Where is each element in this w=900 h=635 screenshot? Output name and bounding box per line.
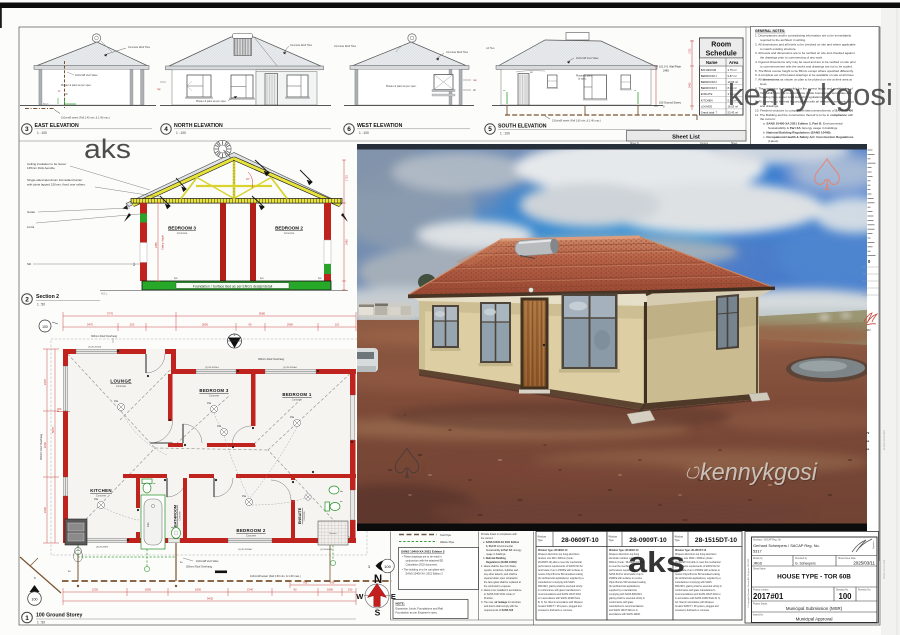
svg-text:Sustainability & Part XA: Ener: Sustainability & Part XA: Energy usage i… [768, 126, 838, 130]
svg-text:110mmØ Vent Valve: 110mmØ Vent Valve [196, 560, 219, 563]
svg-text:BEDROOM 2: BEDROOM 2 [701, 80, 718, 84]
svg-text:SANS 10400-XA 2021 Edition 2: SANS 10400-XA 2021 Edition 2 [401, 550, 445, 554]
svg-text:2465: 2465 [154, 242, 158, 248]
svg-text:2340: 2340 [247, 588, 254, 592]
svg-text:Sustainability & Part XA: Ener: Sustainability & Part XA: Energy [486, 549, 522, 552]
svg-text:bath: bath [147, 522, 150, 527]
svg-text:Soil Pipe: Soil Pipe [440, 533, 451, 537]
svg-text:NORTH ELEVATION: NORTH ELEVATION [174, 123, 223, 129]
svg-text:1 : 50: 1 : 50 [37, 303, 45, 307]
svg-text:(for architectural application: (for architectural applications), [609, 585, 641, 588]
svg-text:Concrete: Concrete [116, 385, 127, 388]
svg-text:Issued for: Issued for [753, 614, 763, 617]
svg-text:Window Type: 28-0609T-10: Window Type: 28-0609T-10 [538, 550, 568, 552]
svg-text:999:2013, glazing shall be exe: 999:2013, glazing shall be executed stri… [538, 585, 583, 588]
svg-text:1733: 1733 [345, 175, 349, 181]
svg-text:and doors shall comply with th: and doors shall comply with the [484, 605, 519, 608]
svg-text:1. Glass shall be free from f: 1. Glass shall be free from flaws, [481, 565, 517, 568]
svg-text:to commencement with the works: to commencement with the works and drawi… [760, 64, 853, 68]
svg-text:Schedule: Schedule [706, 51, 737, 58]
svg-text:Concrete Roof Tiles: Concrete Roof Tiles [128, 46, 151, 49]
svg-text:5317: 5317 [753, 549, 762, 554]
svg-text:28-0909T-10: 28-0909T-10 [629, 537, 667, 544]
svg-text:Section 2: Section 2 [36, 294, 59, 300]
svg-text:XA, fitted in accordance with: XA, fitted in accordance with Wispeco [675, 601, 715, 604]
svg-text:Regulations (SANS 10400):: Regulations (SANS 10400): [486, 561, 517, 564]
svg-text:BATHROOM: BATHROOM [174, 505, 178, 527]
svg-text:110mmØ sewer (Fall 1:60 min.: 110mmØ sewer (Fall 1:60 min. & 1:40 max.… [552, 120, 601, 123]
svg-text:N.G.L.: N.G.L. [101, 294, 108, 296]
svg-text:2: 2 [25, 296, 29, 303]
svg-text:Concrete: Concrete [246, 534, 257, 537]
svg-text:recommendations and SANS 10137: recommendations and SANS 10137:2011 [538, 593, 582, 596]
svg-text:usage in buildings: usage in buildings [486, 553, 506, 556]
svg-text:receive 15μm Bronze 543 anodis: receive 15μm Bronze 543 anodised coating [538, 573, 584, 576]
svg-text:3. All levels and dimensions: 3. All levels and dimensions are to be v… [755, 51, 855, 55]
svg-text:15a: 15a [114, 400, 119, 403]
svg-text:5080: 5080 [259, 312, 266, 316]
svg-text:2465: 2465 [663, 69, 669, 73]
svg-text:1: 1 [25, 615, 29, 622]
svg-text:S: S [375, 608, 381, 618]
svg-text:BEDROOM 2: BEDROOM 2 [275, 226, 303, 231]
svg-text:Crealco SWIFT™ 28 system, plug: Crealco SWIFT™ 28 system, plugged and [675, 605, 719, 608]
svg-text:B, N, XA, fitted in accordance: B, N, XA, fitted in accordance with Wisp… [538, 601, 583, 604]
svg-text:Shower: Shower [329, 532, 337, 535]
svg-text:2: 2 [234, 333, 236, 337]
svg-text:Sheet Name: Sheet Name [753, 568, 766, 571]
svg-text:BEDROOM 3: BEDROOM 3 [701, 86, 718, 90]
svg-text:11. The Building and the const: 11. The Building and the construction th… [755, 113, 853, 117]
svg-text:110: 110 [335, 323, 340, 327]
svg-text:2465: 2465 [345, 239, 349, 245]
svg-text:et in accordance with SANS 104: et in accordance with SANS 10400 Parts [538, 597, 581, 600]
svg-text:5. The Brick course height t: 5. The Brick course height to be 85mm ex… [755, 69, 854, 73]
svg-text:screwed to brickwork or concre: screwed to brickwork or concrete. [675, 609, 710, 612]
svg-text:with joints lapped 150mm, fixe: with joints lapped 150mm, fixed over raf… [27, 183, 86, 187]
svg-text:100 Ground Storey: 100 Ground Storey [36, 613, 83, 619]
svg-text:aks: aks [628, 547, 685, 579]
svg-text:1 : 100: 1 : 100 [176, 131, 186, 135]
svg-text:the current:: the current: [760, 117, 776, 121]
svg-text:2, Part B: Environmental: 2, Part B: Environmental [486, 545, 513, 548]
svg-text:1850: 1850 [195, 588, 202, 592]
svg-text:za: za [866, 439, 869, 443]
svg-text:in accordance with SANS 10400: in accordance with SANS 10400 Parts B, N… [675, 597, 721, 600]
svg-text:(1) 28-1514t6: (1) 28-1514t6 [88, 346, 102, 349]
svg-text:300: 300 [57, 407, 62, 411]
svg-text:Ceiling Height: Ceiling Height [162, 235, 165, 250]
svg-text:300mm Roof Overhang: 300mm Roof Overhang [186, 566, 213, 569]
svg-text:Type: Type [675, 539, 681, 542]
svg-text:conformance with glass: conformance with glass [609, 601, 634, 604]
svg-text:(1) 28-0606t: (1) 28-0606t [320, 548, 332, 551]
svg-text:1850: 1850 [327, 588, 334, 592]
svg-text:za: za [866, 447, 869, 451]
svg-text:15a: 15a [290, 416, 295, 419]
svg-text:the face glass shall be replac: the face glass shall be replaced at [484, 581, 521, 584]
svg-text:BEDROOM 3: BEDROOM 3 [199, 388, 229, 393]
svg-text:100: 100 [42, 325, 48, 329]
svg-text:WEST ELEVATION: WEST ELEVATION [357, 123, 403, 129]
svg-text:NOTE:: NOTE: [396, 602, 405, 606]
svg-text:requirements of SANS 613.: requirements of SANS 613. [484, 609, 514, 612]
svg-text:Foundation as per Engineer's s: Foundation as per Engineer's spec. [396, 611, 438, 615]
svg-text:Concrete: Concrete [292, 398, 303, 401]
svg-text:15a: 15a [207, 402, 212, 405]
svg-text:Concrete Roof Tiles: Concrete Roof Tiles [334, 45, 357, 48]
svg-text:2. All dimensions and all le: 2. All dimensions and all levels to be c… [755, 42, 856, 46]
svg-text:2850: 2850 [202, 323, 209, 327]
svg-text:b. National Building Regulati: b. National Building Regulations (SANS 1… [763, 130, 831, 134]
svg-text:300mm Roof Overhang: 300mm Roof Overhang [91, 335, 118, 338]
svg-text:SOUTH ELEVATION: SOUTH ELEVATION [498, 123, 547, 129]
svg-text:1 : 50: 1 : 50 [37, 621, 45, 625]
svg-text:(for architectural application: (for architectural applications), suppli… [538, 577, 584, 580]
svg-text:a. SANS 10400-XA 2021 Edition: a. SANS 10400-XA 2021 Edition [483, 541, 520, 544]
svg-text:Gutter: Gutter [27, 210, 35, 214]
svg-text:Plaster & paint as per spec.: Plaster & paint as per spec. [196, 100, 227, 103]
svg-text:recommendations and SANS 10137: recommendations and SANS 10137:2011 et [675, 593, 721, 596]
svg-text:1 : 100: 1 : 100 [37, 131, 47, 135]
svg-text:2025/03/11 21:46:24: 2025/03/11 21:46:24 [883, 430, 885, 451]
svg-text:4. Figured dimensions only m: 4. Figured dimensions only may be used a… [755, 60, 856, 64]
svg-text:2025/03/11: 2025/03/11 [853, 561, 875, 566]
svg-text:complying with SANS 999:2013,: complying with SANS 999:2013, [609, 593, 643, 596]
svg-text:Concrete: Concrete [96, 494, 107, 497]
svg-text:wind loads of up to 1500Pa wit: wind loads of up to 1500Pa with surfaces… [538, 569, 584, 572]
svg-text:110mmØ sewer (Fall 1:40 min.: 110mmØ sewer (Fall 1:40 min. & 1:45 max.… [61, 117, 110, 120]
svg-text:Concrete Roof Tiles: Concrete Roof Tiles [290, 44, 313, 47]
svg-text:BATHROOM: BATHROOM [701, 68, 717, 72]
svg-text:1733: 1733 [689, 48, 692, 54]
svg-text:BEDROOM 1: BEDROOM 1 [701, 74, 718, 78]
svg-text:Foundation / Surface Bed as pe: Foundation / Surface Bed as per ENG's de… [193, 284, 273, 288]
svg-text:Area: Area [729, 60, 739, 65]
svg-text:250: 250 [130, 323, 135, 327]
svg-text:N: N [374, 574, 382, 586]
svg-text:ENSUITE: ENSUITE [701, 92, 713, 96]
svg-text:Expansion Joints, Foundations: Expansion Joints, Foundations and Raft [396, 607, 444, 611]
svg-text:(1) 28-1515b0: (1) 28-1515b0 [283, 367, 298, 369]
svg-text:110mmØ Vent Valve: 110mmØ Vent Valve [75, 74, 98, 77]
svg-text:Architect / SACAP Reg. No.: Architect / SACAP Reg. No. [753, 539, 782, 542]
svg-text:glazing shall be executed stri: glazing shall be executed strictly in [609, 597, 646, 600]
svg-text:to spec.: to spec. [578, 78, 587, 81]
svg-text:Project Status: Project Status [753, 603, 768, 606]
svg-text:kenny kgosi: kenny kgosi [728, 77, 893, 112]
svg-text:a. SANS 10400-XA 2021 Edition: a. SANS 10400-XA 2021 Edition 2, Part B:… [763, 122, 843, 126]
svg-text:(2) 28-1515b1: (2) 28-1515b1 [205, 367, 220, 369]
svg-text:15μm Bronze 543 anodised coati: 15μm Bronze 543 anodised coating [609, 581, 646, 584]
svg-text:Calculation 2022 document.: Calculation 2022 document. [406, 563, 438, 567]
svg-text:Sill: Sill [27, 262, 31, 266]
svg-text:Single-sided aluminium foil ra: Single-sided aluminium foil radiant barr… [27, 178, 82, 182]
svg-text:Concrete: Concrete [179, 511, 182, 521]
svg-text:79: 79 [866, 431, 870, 435]
svg-text:28-0609T-10: 28-0609T-10 [561, 537, 599, 544]
svg-text:90: 90 [248, 323, 252, 327]
svg-text:3.75 m²: 3.75 m² [728, 68, 737, 72]
svg-text:the current:: the current: [481, 537, 494, 540]
svg-text:(Latest): (Latest) [768, 139, 778, 143]
svg-text:screwed to brickwork or concre: screwed to brickwork or concrete. [538, 609, 573, 612]
svg-text:2470: 2470 [43, 378, 47, 385]
svg-text:110mmØ sewer (Fall 1:60 min. &: 110mmØ sewer (Fall 1:60 min. & 1:40 max.… [250, 574, 301, 578]
svg-text:4: 4 [164, 126, 168, 133]
svg-text:Type: Type [609, 539, 615, 542]
svg-text:accordance with SANS 10400.: accordance with SANS 10400. [609, 613, 641, 616]
svg-text:EAST ELEVATION: EAST ELEVATION [35, 123, 79, 129]
svg-text:90: 90 [293, 588, 297, 592]
svg-text:15a: 15a [217, 425, 222, 428]
svg-text:supplied by a manufacturer: supplied by a manufacturer [609, 589, 637, 592]
svg-text:to SANS 0137:2011 Code of: to SANS 0137:2011 Code of [484, 593, 515, 596]
svg-text:G. Scheepers: G. Scheepers [795, 562, 816, 566]
svg-text:Municipal Submission (MSR): Municipal Submission (MSR) [786, 606, 843, 611]
svg-text:Checked by: Checked by [795, 558, 808, 560]
svg-text:aks: aks [84, 134, 131, 164]
svg-text:9420: 9420 [207, 597, 214, 601]
svg-text:KITCHEN: KITCHEN [701, 98, 713, 102]
svg-text:Grand total: 7: Grand total: 7 [701, 111, 718, 115]
svg-text:40°: 40° [246, 178, 250, 181]
svg-text:(1) 28-1515b8: (1) 28-1515b8 [238, 549, 253, 551]
svg-text:Date & Time Stamp: Date & Time Stamp [883, 560, 886, 580]
svg-text:performance requirements of SA: performance requirements of SANS 613 for [538, 565, 583, 568]
svg-text:3770: 3770 [107, 312, 114, 316]
svg-text:3: 3 [368, 565, 370, 569]
svg-text:Waste Pipe: Waste Pipe [440, 540, 455, 544]
svg-text:to match existing structure.: to match existing structure. [760, 47, 797, 51]
svg-text:conjunction with the attached: conjunction with the attached EE [406, 559, 444, 563]
svg-text:BEDROOM 1: BEDROOM 1 [282, 392, 312, 397]
svg-text:(4) 28-0909t: (4) 28-0909t [96, 546, 108, 549]
svg-text:oof Tiles: oof Tiles [486, 48, 495, 50]
svg-text:BEDROOM 2: BEDROOM 2 [236, 528, 266, 533]
svg-text:♤: ♤ [807, 151, 846, 200]
svg-text:JRGS: JRGS [753, 562, 763, 566]
svg-text:5870: 5870 [51, 426, 55, 433]
svg-text:KITCHEN: KITCHEN [90, 488, 112, 493]
svg-text:5: 5 [488, 126, 492, 133]
svg-text:Plaster & paint as per spec.: Plaster & paint as per spec. [386, 85, 417, 88]
svg-text:135mm thick Aerolite: 135mm thick Aerolite [27, 166, 55, 170]
svg-text:Municipal Approval: Municipal Approval [796, 617, 833, 622]
svg-text:specks, scratches, bubbles and: specks, scratches, bubbles and [484, 569, 519, 572]
svg-text:28-0609T-10) able to meet the: 28-0609T-10) able to meet the mechanical [538, 561, 582, 564]
svg-text:• This building is to be comp: • This building is to be compliant with [402, 568, 445, 572]
svg-text:and SANS 10137:2011 et in: and SANS 10137:2011 et in [609, 609, 638, 612]
svg-text:conformance with glass manufac: conformance with glass manufacturer's [675, 589, 716, 592]
svg-text:♤: ♤ [388, 440, 426, 487]
svg-text:Type: Type [538, 539, 544, 542]
svg-text:cleaned down upon completion: cleaned down upon completion [484, 577, 518, 580]
svg-text:ENSUITE: ENSUITE [298, 507, 302, 524]
svg-text:Name: Name [706, 60, 718, 65]
svg-text:Provide lintels in compliance: Provide lintels in compliance with [481, 533, 517, 536]
svg-text:3. The max. air leakage for w: 3. The max. air leakage for windows [481, 601, 521, 604]
svg-text:Practice.: Practice. [484, 597, 494, 600]
svg-text:1 : 100: 1 : 100 [500, 132, 510, 136]
svg-text:Crealco SWIFT™ 28 system, plug: Crealco SWIFT™ 28 system, plugged and [538, 605, 582, 608]
svg-text:Concrete: Concrete [303, 511, 306, 521]
svg-text:the contractor's expense.: the contractor's expense. [484, 585, 511, 588]
svg-text:1 : 100: 1 : 100 [359, 131, 369, 135]
svg-text:1. Discrepancies and/or cont: 1. Discrepancies and/or contradicting in… [755, 34, 852, 38]
svg-text:Wispeco Aluminium top hung alu: Wispeco Aluminium top hung aluminium [538, 553, 579, 556]
svg-text:manufacturer complying with SA: manufacturer complying with SANS [538, 581, 575, 584]
svg-text:manufacturer's recommendations: manufacturer's recommendations [609, 605, 644, 608]
svg-text:b. National Building: b. National Building [483, 557, 506, 560]
svg-text:150: 150 [348, 588, 353, 592]
svg-text:Signature: Signature [872, 540, 875, 549]
svg-text:LOUNGE: LOUNGE [701, 104, 713, 108]
svg-text:1850: 1850 [145, 588, 152, 592]
svg-text:100: 100 [838, 592, 852, 601]
svg-text:in conformance with glass manu: in conformance with glass manufacturer's [538, 589, 582, 592]
svg-text:wt: wt [530, 71, 533, 74]
svg-text:100 Ground Storey: 100 Ground Storey [659, 101, 682, 105]
svg-text:2465: 2465 [689, 82, 692, 88]
svg-text:manufacturer complying with SA: manufacturer complying with SANS [675, 581, 712, 584]
svg-text:window, size 600 x 900mm (Code: window, size 600 x 900mm (Code : [538, 558, 574, 560]
svg-text:Concrete: Concrete [284, 231, 295, 235]
svg-text:2017#01: 2017#01 [753, 592, 784, 601]
svg-text:the drawings prior to commenci: the drawings prior to commencing of any … [760, 56, 823, 60]
svg-text:GENERAL NOTES:: GENERAL NOTES: [755, 29, 785, 33]
svg-text:6: 6 [347, 126, 351, 133]
svg-text:SANS 10400-XA: 2021 Edition 2: SANS 10400-XA: 2021 Edition 2 [406, 572, 444, 576]
svg-text:Lintol: Lintol [27, 225, 35, 229]
svg-text:Drawn by: Drawn by [753, 557, 764, 560]
svg-text:Plaster & paint as per spec.: Plaster & paint as per spec. [61, 84, 92, 87]
svg-text:© Copyright Quantity Drawn ALL: © Copyright Quantity Drawn ALL Projects … [747, 558, 750, 608]
svg-text:LOUNGE: LOUNGE [110, 379, 131, 384]
svg-text:kennykgosi: kennykgosi [700, 459, 818, 486]
svg-text:Sheet List: Sheet List [672, 134, 700, 140]
svg-text:HOUSE TYPE - TOR 60B: HOUSE TYPE - TOR 60B [777, 574, 851, 581]
svg-text:482: 482 [866, 328, 871, 332]
svg-text:Concrete: Concrete [209, 394, 220, 397]
svg-text:E: E [391, 592, 396, 601]
svg-text:reported to the architect in w: reported to the architect in writing. [760, 38, 806, 42]
svg-text:999:2013, glazing shall be exe: 999:2013, glazing shall be executed stri… [675, 585, 723, 588]
svg-text:2660: 2660 [43, 441, 47, 448]
svg-text:Concrete Roof Tiles: Concrete Roof Tiles [446, 51, 469, 54]
svg-text:15a: 15a [94, 498, 99, 501]
svg-text:28-1515DT-10: 28-1515DT-10 [695, 537, 737, 544]
svg-text:Concrete: Concrete [177, 231, 188, 235]
svg-text:Revision No.: Revision No. [858, 590, 871, 592]
svg-text:Room: Room [711, 42, 731, 49]
svg-text:3470: 3470 [87, 323, 94, 327]
svg-text:2. Glass to be installed in a: 2. Glass to be installed in accordance [481, 589, 522, 592]
svg-text:15a: 15a [242, 495, 247, 498]
svg-text:any other defects, and shall b: any other defects, and shall be [484, 573, 518, 576]
svg-text:3: 3 [25, 126, 29, 133]
svg-text:BEDROOM 3: BEDROOM 3 [168, 226, 196, 231]
svg-text:c. Occupational Health & Safe: c. Occupational Health & Safety Act: Con… [763, 135, 854, 139]
svg-text:W: W [356, 592, 364, 601]
svg-text:2250: 2250 [92, 588, 99, 592]
svg-text:• These drawings are to be re: • These drawings are to be read in [402, 555, 442, 559]
svg-text:2360: 2360 [43, 506, 47, 513]
svg-text:101.0 S. Wall Plate: 101.0 S. Wall Plate [659, 65, 682, 69]
svg-text:110mmØ Vent Valve: 110mmØ Vent Valve [576, 57, 599, 60]
svg-text:2960: 2960 [287, 323, 294, 327]
svg-text:100: 100 [384, 564, 391, 569]
svg-text:Gerhard Scheepers / SACAP Reg.: Gerhard Scheepers / SACAP Reg. No. [753, 543, 820, 548]
svg-text:300mm Roof Overhang: 300mm Roof Overhang [258, 358, 285, 361]
svg-text:100: 100 [32, 598, 38, 602]
svg-text:Beam: Beam [43, 104, 49, 106]
